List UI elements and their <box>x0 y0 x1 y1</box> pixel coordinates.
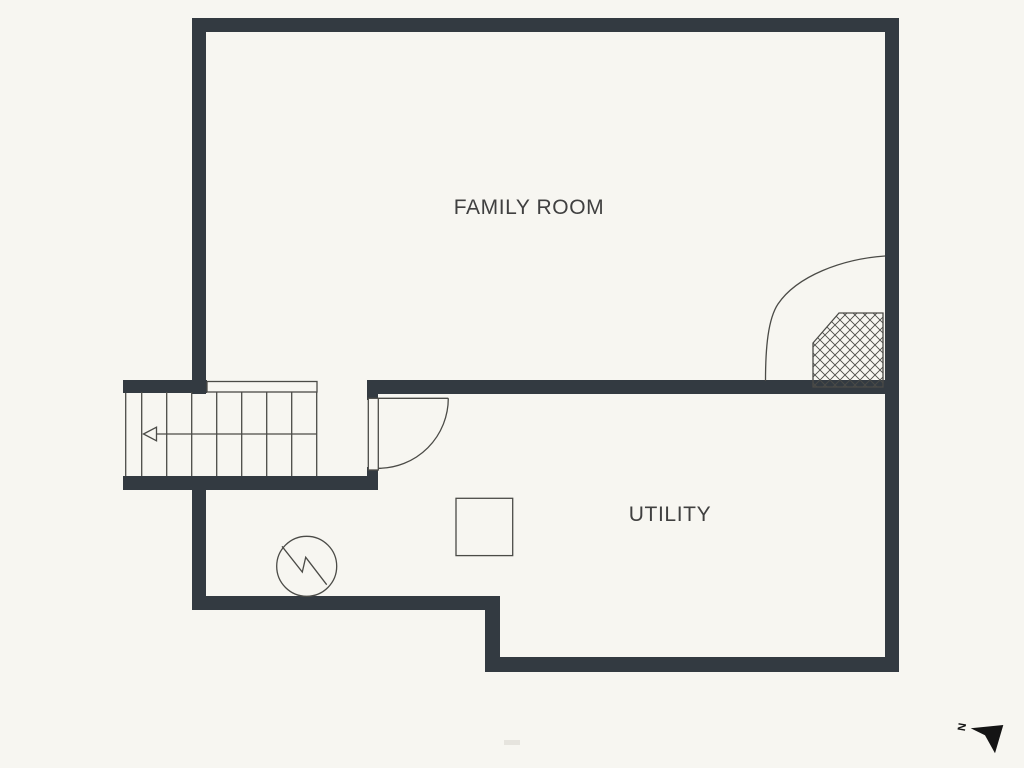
wall-left-family-room <box>192 18 206 394</box>
wall-right-exterior <box>885 18 899 672</box>
wall-left-utility <box>192 483 206 610</box>
wall-door-jamb-top <box>367 380 378 400</box>
floor-plan-canvas: FAMILY ROOM UTILITY N <box>0 0 1024 768</box>
floor-plan: FAMILY ROOM UTILITY N <box>0 0 1024 768</box>
wall-bottom-utility <box>485 657 899 672</box>
wall-stairwell-bottom <box>123 476 378 490</box>
stair-wall-opening-strip <box>207 382 317 393</box>
utility-label: UTILITY <box>629 503 711 526</box>
wall-top-exterior <box>192 18 899 32</box>
wall-bottom-left <box>192 596 500 610</box>
door-panel <box>368 398 378 470</box>
watermark-smudge <box>504 740 520 745</box>
family-room-label: FAMILY ROOM <box>454 196 605 219</box>
wall-stairwell-top <box>123 380 207 393</box>
